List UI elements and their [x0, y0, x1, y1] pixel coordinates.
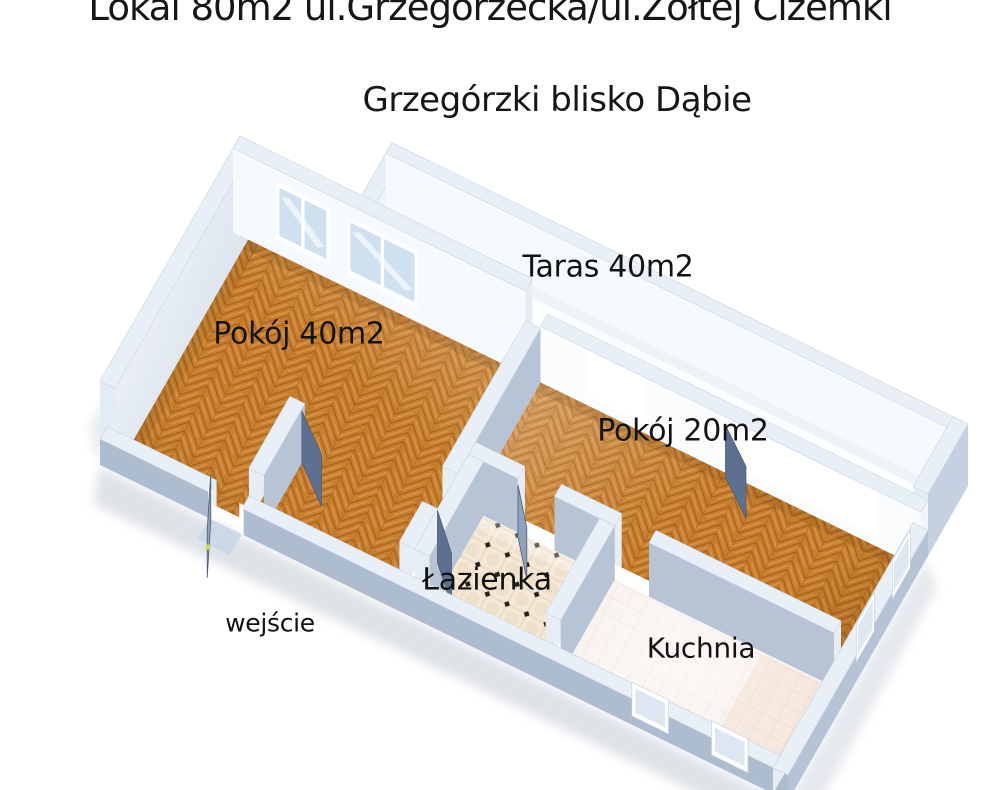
plan-scene — [88, 136, 968, 790]
entrance-label: wejście — [225, 609, 315, 638]
room-label-pokoj-40: Pokój 40m2 — [213, 317, 384, 352]
page-title: Lokal 80m2 ul.Grzegórzecka/ul.Żółtej Ciż… — [88, 0, 891, 29]
room-label-kuchnia: Kuchnia — [647, 632, 755, 665]
entrance-jamb — [239, 503, 243, 535]
room-label-pokoj-20: Pokój 20m2 — [597, 414, 768, 449]
room-label-taras: Taras 40m2 — [522, 250, 693, 285]
entrance-door-handle — [205, 544, 210, 549]
page-subtitle: Grzegórzki blisko Dąbie — [363, 80, 752, 120]
floor-plan-image: Lokal 80m2 ul.Grzegórzecka/ul.Żółtej Ciż… — [0, 0, 1000, 790]
room-label-lazienka: Łazienka — [422, 563, 552, 598]
